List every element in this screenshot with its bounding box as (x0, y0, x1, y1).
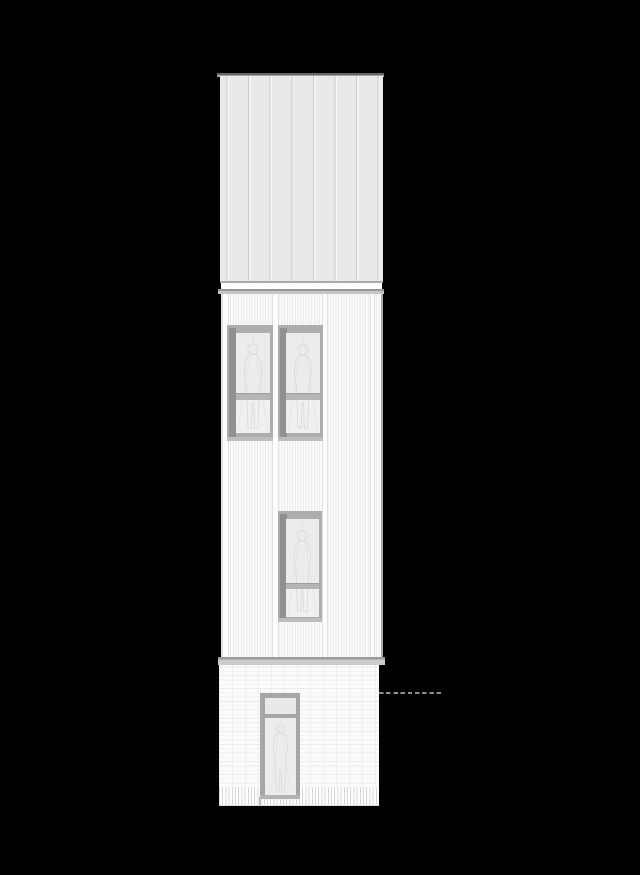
window-divider-rail (236, 393, 270, 400)
window-mid-level (278, 511, 322, 622)
window-divider-rail (286, 393, 320, 400)
roof-standing-seam-panels (220, 76, 383, 281)
door-transom-light (265, 698, 296, 714)
ground-floor-brick-wall (219, 665, 379, 807)
window-upper-right (278, 325, 323, 441)
window-sill (227, 437, 274, 441)
entry-door (260, 693, 300, 799)
window-upper-left (227, 325, 274, 441)
window-upper-pane (286, 519, 319, 583)
window-lower-pane (236, 400, 270, 433)
window-lower-pane (286, 400, 320, 433)
window-lower-pane (286, 589, 319, 617)
door-glazed-leaf (265, 718, 296, 795)
window-upper-pane (286, 333, 320, 393)
window-divider-rail (286, 583, 319, 589)
door-threshold (260, 795, 300, 799)
siding-batten (370, 294, 376, 658)
window-sill (278, 618, 322, 622)
door-jamb-base-line (259, 797, 261, 805)
window-upper-pane (236, 333, 270, 393)
level-datum-dashed-line (379, 692, 444, 694)
upper-wall-vertical-siding (221, 294, 383, 658)
window-jamb-shadow (229, 328, 236, 439)
window-sill (278, 437, 323, 441)
elevation-drawing-canvas (0, 0, 640, 875)
